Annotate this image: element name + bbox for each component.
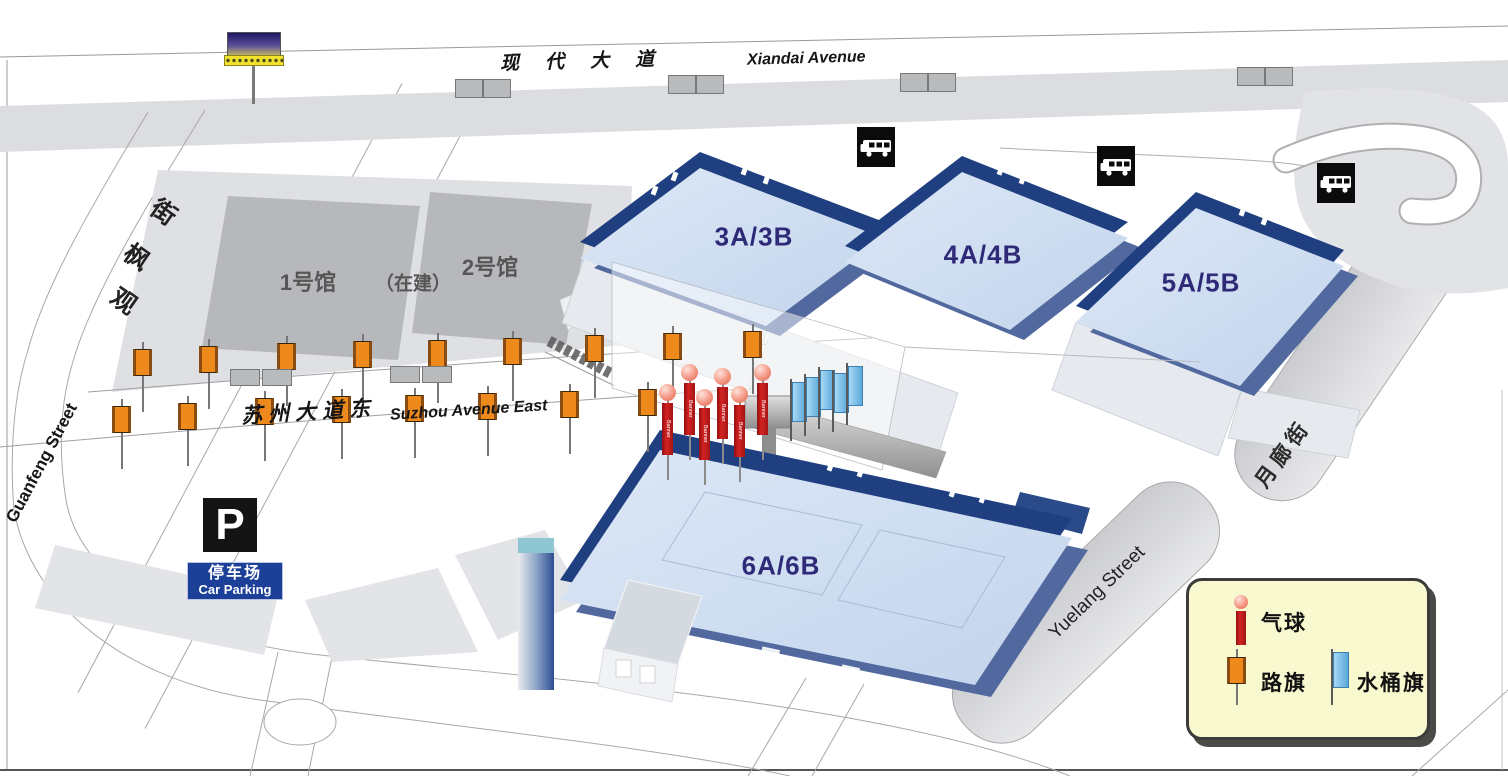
hall-3-label: 3A/3B [715, 222, 794, 253]
balloon-banner-icon: Banner [731, 386, 751, 491]
roof-vent [1239, 206, 1247, 216]
road-flag-icon [560, 384, 580, 462]
road-flag [743, 331, 762, 358]
road-flag [503, 338, 522, 365]
road-flag [1227, 657, 1246, 684]
balloon-icon [731, 386, 748, 403]
bus-shelter [696, 75, 724, 94]
road-flag-icon [178, 396, 198, 474]
road-flag [663, 333, 682, 360]
road-flag [178, 403, 197, 430]
road-flag [638, 389, 657, 416]
roof-vent [763, 174, 771, 184]
expo-site-map: Banner Banner Banner Banner Banner Banne… [0, 0, 1508, 776]
balloon-banner-icon: Banner [659, 384, 679, 489]
xiandai-avenue-label-cn: 现代大道 [500, 43, 681, 75]
bus-shelter [1237, 67, 1265, 86]
parking-panel: 停车场 Car Parking [187, 562, 283, 600]
bus-shelter [262, 369, 292, 386]
banner-flag: Banner [757, 383, 768, 435]
roof-vent [1261, 215, 1269, 225]
road-flag-icon [199, 339, 219, 417]
bus-shelter [390, 366, 420, 383]
balloon-icon [696, 389, 713, 406]
xiandai-avenue-label-en: Xiandai Avenue [747, 48, 866, 69]
road-flag [585, 335, 604, 362]
roof-vent [857, 467, 865, 477]
roof-vent [1019, 174, 1027, 184]
road-flag-icon [638, 382, 658, 460]
banner-icon [1236, 611, 1246, 645]
bus-shelter [455, 79, 483, 98]
billboard-board [227, 32, 281, 57]
roof-vent [671, 171, 679, 181]
road-flag [133, 349, 152, 376]
under-construction-label: （在建） [375, 269, 451, 296]
balloon-banner-icon: Banner [696, 389, 716, 494]
hall-1-label: 1号馆 [280, 265, 336, 297]
road-flag [353, 341, 372, 368]
hall-5-label: 5A/5B [1162, 268, 1241, 299]
road-flag [428, 340, 447, 367]
bucket-flag [848, 366, 863, 406]
balloon-icon [659, 384, 676, 401]
roof-vent [979, 493, 987, 503]
billboard-lights [224, 55, 284, 66]
road-flag [560, 391, 579, 418]
bus-stop-icon [1317, 163, 1355, 203]
hall-4-label: 4A/4B [944, 240, 1023, 271]
parking-label-cn: 停车场 [188, 565, 282, 583]
road-flag-icon [585, 328, 605, 406]
legend: 气球 路旗 水桶旗 [1186, 578, 1430, 740]
bucket-flag-icon [846, 363, 862, 429]
bus-shelter [900, 73, 928, 92]
roof-vent [651, 185, 659, 195]
road-flag-icon [503, 331, 523, 409]
bus-shelter [1265, 67, 1293, 86]
bus-stop-icon [1097, 146, 1135, 186]
banner-flag: Banner [662, 403, 673, 455]
banner-flag: Banner [717, 387, 728, 439]
balloon-icon [754, 364, 771, 381]
bucket-flag [1333, 652, 1349, 688]
banner-flag: Banner [699, 408, 710, 460]
road-flag-icon [405, 388, 425, 466]
bus-stop-icon [857, 127, 895, 167]
bucket-flag-icon [1331, 649, 1347, 715]
roof-vent [827, 461, 835, 471]
road-flag-icon [133, 342, 153, 420]
road-flag [199, 346, 218, 373]
banner-flag: Banner [734, 405, 745, 457]
road-flag-icon [112, 399, 132, 477]
legend-label-road-flag: 路旗 [1261, 667, 1307, 697]
roof-vent [997, 165, 1005, 175]
balloon-banner-icon: Banner [754, 364, 774, 469]
balloon-icon [1234, 595, 1248, 609]
hall-2-label: 2号馆 [462, 250, 518, 282]
road-flag-icon [1227, 649, 1247, 727]
road-flag [277, 343, 296, 370]
road-flag-icon [478, 386, 498, 464]
balloon-icon [714, 368, 731, 385]
parking-p-icon: P [203, 498, 257, 552]
hall-6-label: 6A/6B [742, 551, 821, 582]
bus-shelter [422, 366, 452, 383]
parking-label-en: Car Parking [188, 583, 282, 597]
legend-label-balloon: 气球 [1261, 607, 1307, 637]
roof-vent [741, 165, 749, 175]
legend-label-bucket-flag: 水桶旗 [1357, 667, 1426, 697]
balloon-icon [681, 364, 698, 381]
billboard-pole [252, 64, 255, 104]
banner-flag: Banner [684, 383, 695, 435]
roof-vent [949, 487, 957, 497]
bus-shelter [230, 369, 260, 386]
bus-shelter [483, 79, 511, 98]
road-flag [112, 406, 131, 433]
bus-shelter [668, 75, 696, 94]
bus-shelter [928, 73, 956, 92]
